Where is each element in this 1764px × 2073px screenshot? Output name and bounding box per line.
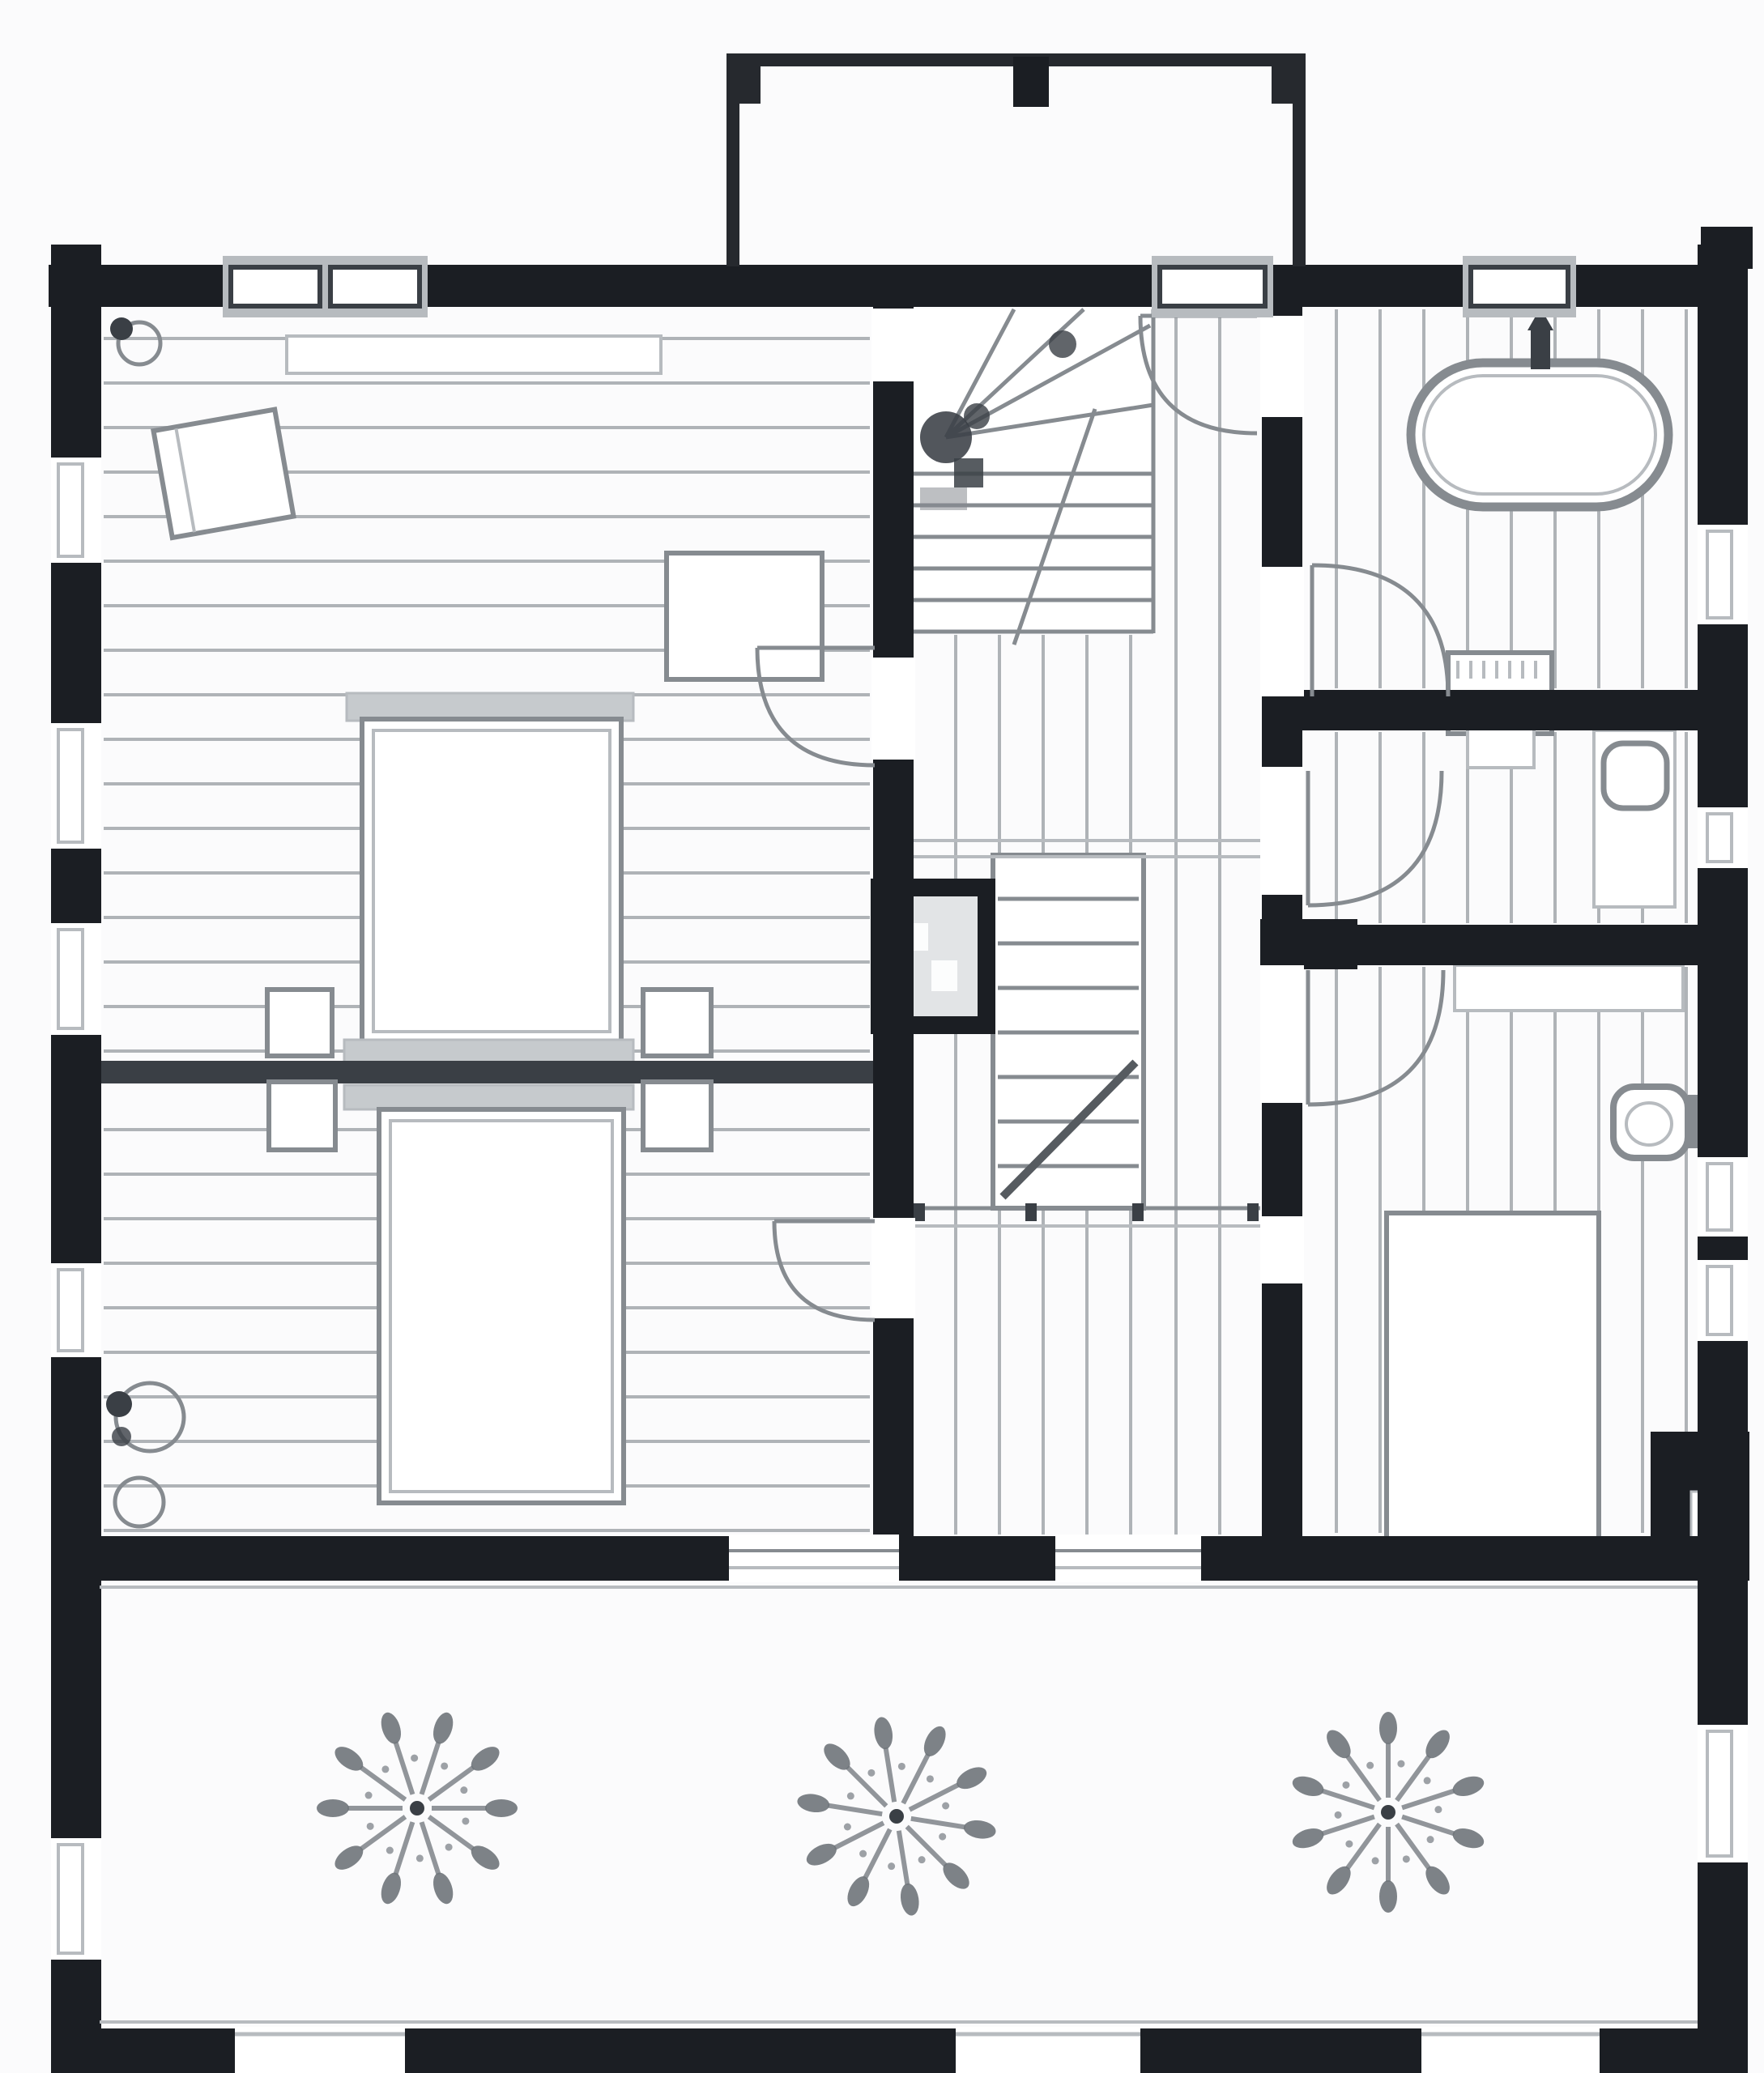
wall-washroom-bottom (1302, 925, 1748, 965)
plant-dot (381, 1765, 389, 1773)
plant-dot (462, 1817, 469, 1824)
plant-bud (377, 1710, 404, 1747)
lower-bed-headboard (344, 1085, 633, 1109)
plant-bud (1290, 1773, 1327, 1799)
plant-dot (445, 1844, 453, 1851)
plant-bud (796, 1792, 831, 1815)
plant-dot (918, 1856, 926, 1863)
floor-plan-page (0, 0, 1764, 2073)
plant-dot (847, 1792, 854, 1799)
plant-bud (1290, 1824, 1327, 1851)
railing-post-1 (914, 1203, 925, 1221)
plant-stem (865, 1829, 890, 1879)
railing-post-2 (1025, 1203, 1037, 1221)
bay-wall-right (1293, 53, 1306, 266)
bedroom-partition (100, 1061, 873, 1083)
plant-dot (416, 1854, 424, 1862)
plant-stem (847, 1767, 886, 1806)
plant-stem (395, 1742, 412, 1794)
railing-post-3 (1132, 1203, 1144, 1221)
stair-newel-post (920, 411, 972, 463)
plant-dot (1372, 1857, 1379, 1864)
plant-dot (1424, 1777, 1431, 1784)
door-opening (871, 658, 915, 760)
plant-dot (1434, 1806, 1442, 1813)
plant-symbol (1290, 1712, 1487, 1913)
bay-hinge-right (1272, 65, 1293, 104)
plant-bud (317, 1799, 349, 1817)
plant-stem (834, 1823, 884, 1848)
plant-symbol (317, 1710, 518, 1907)
shaft-mark-2 (931, 960, 957, 991)
plant-bud (429, 1710, 456, 1747)
plant-bud (485, 1799, 518, 1817)
wall-lamp-shade (110, 317, 133, 340)
plant-dot (1403, 1855, 1410, 1862)
dresser (667, 553, 822, 679)
door-opening (871, 309, 915, 381)
plant-bud (1379, 1880, 1397, 1913)
right-window (1698, 525, 1748, 624)
plant-stem (1322, 1790, 1374, 1807)
top-bay (726, 53, 1306, 266)
plant-stem (395, 1822, 412, 1875)
plant-stem (1347, 1756, 1379, 1800)
plant-dot (1397, 1760, 1404, 1768)
plant-bud (843, 1873, 874, 1910)
plant-bud (962, 1818, 997, 1841)
top-window (330, 267, 420, 306)
top-window (1160, 267, 1265, 306)
right-window (1698, 1260, 1748, 1341)
plant-stem (910, 1785, 959, 1810)
plant-dot (942, 1803, 949, 1810)
plant-dot (844, 1823, 851, 1830)
floor-lamp-large-base (112, 1427, 131, 1446)
plant-dot (867, 1769, 875, 1777)
plant-dot (1366, 1762, 1374, 1769)
plant-center (410, 1801, 424, 1815)
plant-stem (911, 1819, 965, 1828)
door-opening (1260, 1216, 1304, 1283)
toilet-bowl (1613, 1087, 1688, 1158)
plant-stem (429, 1767, 474, 1799)
plant-bud (898, 1882, 921, 1917)
plant-symbol (796, 1716, 997, 1917)
balcony-door-opening (1055, 1535, 1201, 1582)
plant-stem (1402, 1817, 1455, 1834)
plant-stem (360, 1817, 405, 1850)
nightstand-upper-left (267, 990, 332, 1056)
wall-bedroom-hall (873, 307, 914, 1538)
wall-room-bottom (51, 1536, 1748, 1581)
bay-hinge-left (739, 65, 761, 104)
plant-bud (803, 1839, 841, 1870)
wall-junction-nub (1260, 919, 1357, 969)
door-opening (1260, 767, 1304, 895)
wall-shelf (287, 336, 661, 373)
door-opening (1260, 316, 1304, 417)
railing-post-4 (1247, 1203, 1259, 1221)
plant-dot (939, 1833, 946, 1841)
bath-faucet (1531, 327, 1550, 369)
plant-center (889, 1809, 904, 1824)
lower-bedroom-door-arc (774, 1221, 875, 1320)
plant-bud (429, 1870, 456, 1906)
floor-lamp-large-shade (106, 1391, 132, 1417)
upper-bed-footboard (344, 1040, 633, 1062)
upper-bed (362, 719, 621, 1043)
plant-bud (919, 1723, 950, 1760)
plant-dot (1335, 1811, 1342, 1819)
washroom-door-arc (1308, 771, 1442, 905)
armchair-seat (154, 410, 294, 538)
nightstand-upper-right (643, 990, 711, 1056)
plant-dot (1342, 1781, 1349, 1789)
plant-stem (422, 1822, 439, 1875)
plant-stem (907, 1827, 946, 1866)
plant-dot (367, 1823, 374, 1830)
plant-dot (898, 1763, 905, 1770)
plant-dot (888, 1862, 895, 1870)
plant-dot (441, 1762, 448, 1769)
plant-dot (386, 1847, 394, 1854)
plant-bud (1450, 1824, 1486, 1851)
floor-plan-drawing (0, 0, 1764, 2073)
plant-bud (872, 1716, 895, 1751)
door-stop-dot (1049, 330, 1076, 358)
right-window (1698, 1157, 1748, 1237)
plant-stem (899, 1831, 908, 1885)
plant-stem (1397, 1824, 1430, 1869)
stair-newel-detail (964, 403, 990, 429)
plant-dot (859, 1850, 867, 1858)
bay-wall-left (726, 53, 739, 266)
hall-top-door-arc (1140, 316, 1257, 433)
balcony-plants (317, 1710, 1486, 1918)
plant-dot (460, 1786, 467, 1794)
plant-dot (927, 1775, 934, 1782)
stair-shadow-mark (920, 487, 967, 510)
wall-corner-nub-right (1701, 227, 1753, 269)
armchair (154, 410, 294, 538)
plant-stem (1322, 1817, 1374, 1834)
plant-dot (411, 1755, 418, 1762)
plant-bud (377, 1870, 404, 1906)
washroom-sink (1604, 743, 1667, 808)
plant-bud (1450, 1773, 1486, 1799)
plant-center (1381, 1805, 1395, 1820)
plant-dot (1427, 1836, 1434, 1843)
plant-stem (828, 1806, 882, 1815)
lower-bed (379, 1109, 624, 1503)
plant-stem (422, 1742, 439, 1794)
wall-bathroom-bottom (1302, 690, 1748, 730)
balcony-door-opening (729, 1535, 899, 1582)
nightstand-lower-left (269, 1082, 335, 1150)
plant-dot (1345, 1841, 1353, 1848)
right-window (1698, 1725, 1748, 1862)
bay-latch-tab (1013, 57, 1049, 107)
door-opening (871, 1218, 915, 1318)
plant-stem (1402, 1790, 1455, 1807)
plant-bud (1379, 1712, 1397, 1744)
plant-stem (886, 1747, 895, 1802)
upper-bed-headboard (347, 693, 633, 721)
top-window (1471, 267, 1568, 306)
door-opening (1260, 567, 1304, 696)
right-window (1698, 807, 1748, 868)
top-window (231, 267, 320, 306)
toilet-room-counter (1455, 965, 1683, 1011)
nightstand-lower-right (643, 1082, 711, 1150)
plant-stem (903, 1754, 928, 1803)
closet-unit (1387, 1213, 1599, 1564)
stair-landing-mark (954, 458, 983, 487)
plant-dot (365, 1792, 373, 1799)
plant-bud (953, 1763, 991, 1794)
door-opening (1260, 965, 1304, 1103)
